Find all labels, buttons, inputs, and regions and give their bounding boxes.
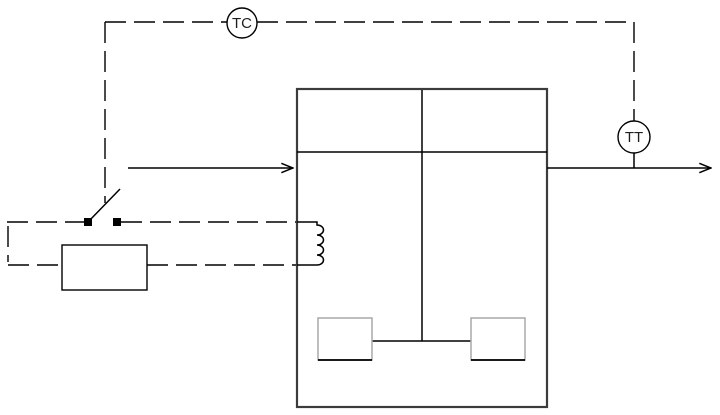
switch-arm xyxy=(88,189,120,222)
agitator-paddle-right xyxy=(471,318,525,360)
temperature-transmitter: TT xyxy=(618,121,650,153)
diagram-canvas: TC TT xyxy=(0,0,720,415)
power-switch xyxy=(84,189,121,226)
power-supply-box xyxy=(62,245,147,290)
agitator-paddle-left xyxy=(318,318,372,360)
temperature-controller: TC xyxy=(227,8,257,38)
heater-wiring xyxy=(7,222,297,265)
process-control-diagram: TC TT xyxy=(0,0,720,415)
stirred-tank xyxy=(297,89,547,407)
temperature-transmitter-label: TT xyxy=(625,129,643,146)
temperature-controller-label: TC xyxy=(232,15,252,32)
heating-coil xyxy=(297,222,324,265)
switch-contact-right xyxy=(113,218,121,226)
controller-signal-lines xyxy=(105,22,634,203)
